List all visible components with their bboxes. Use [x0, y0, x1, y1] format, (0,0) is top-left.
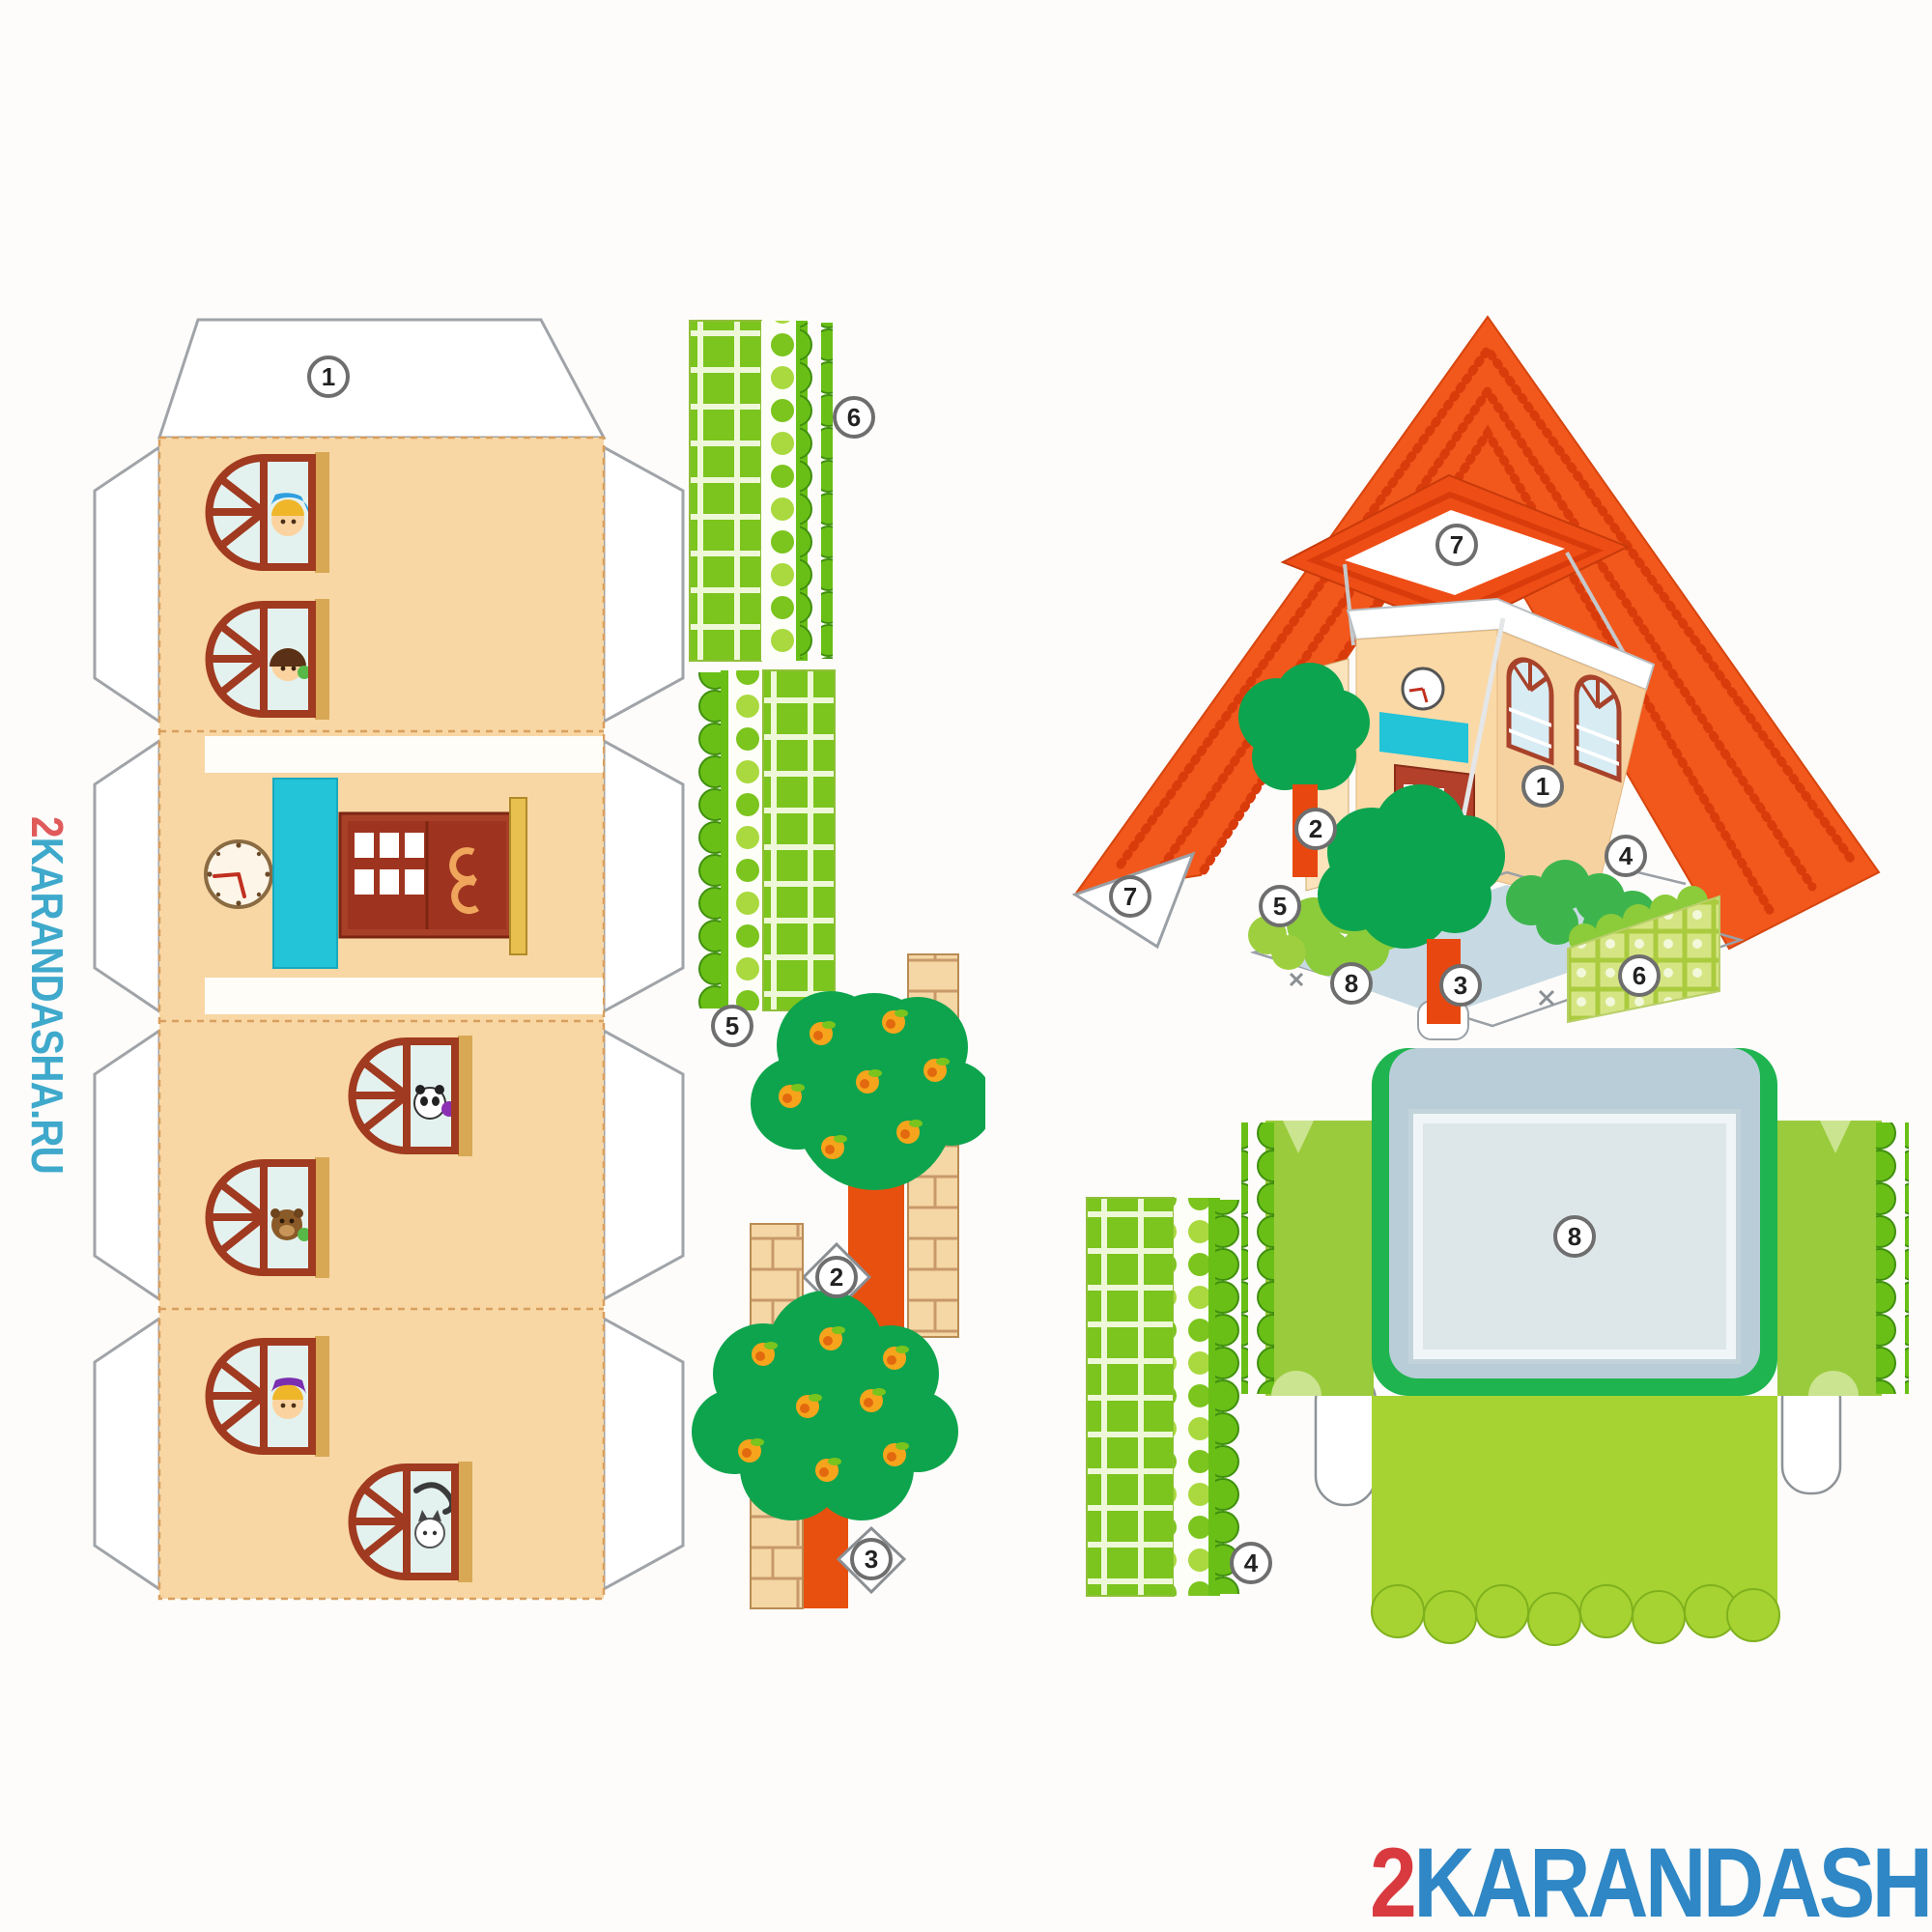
callout-2: 2 [815, 1256, 858, 1298]
clock-icon [206, 841, 271, 907]
callout-8: 8 [1553, 1215, 1596, 1258]
callout-5: 5 [711, 1005, 753, 1047]
window-icon [353, 1036, 473, 1156]
grass-wing-left [1241, 1121, 1374, 1396]
callout-asm-7: 7 [1109, 875, 1151, 918]
watermark-domain: KARANDASHA.RU [22, 838, 72, 1174]
callout-asm-4: 4 [1605, 835, 1647, 877]
house-wall-template [77, 309, 705, 1662]
hedge-strips [667, 309, 995, 1024]
window-icon [210, 599, 330, 720]
callout-4: 4 [1230, 1542, 1272, 1584]
assembly-diagram [1043, 290, 1893, 1082]
wall-band [205, 978, 603, 1014]
hedge-strip-4 [1087, 1198, 1245, 1596]
callout-asm-2: 2 [1294, 808, 1337, 850]
callout-asm-1: 1 [1521, 765, 1564, 808]
callout-asm-6: 6 [1618, 954, 1661, 997]
window-icon [210, 452, 330, 573]
callout-3: 3 [850, 1538, 893, 1580]
callout-asm-8: 8 [1330, 962, 1373, 1005]
watermark-side: 2KARANDASHA.RU [25, 816, 70, 1174]
hedge-strip-6 [690, 321, 833, 661]
watermark-prefix: 2 [1370, 1828, 1413, 1932]
callout-1: 1 [307, 355, 350, 398]
callout-6: 6 [833, 396, 875, 439]
callout-asm-5: 5 [1259, 885, 1301, 927]
grass-wing-right [1777, 1121, 1909, 1396]
window-icon [210, 1336, 330, 1457]
watermark-prefix: 2 [22, 816, 72, 838]
door-pillar [510, 798, 526, 954]
door-icon [340, 813, 514, 937]
watermark-domain: KARANDASHA.RU [1413, 1828, 1932, 1932]
window-icon [353, 1462, 473, 1582]
callout-asm-3: 3 [1439, 964, 1482, 1007]
grass-flap-bottom [1372, 1396, 1779, 1645]
cyan-sign [273, 779, 337, 968]
window-icon [210, 1157, 330, 1278]
craft-sheet: 1 6 5 2 3 4 8 7 7 1 2 5 4 8 3 6 2KARANDA… [0, 0, 1932, 1932]
base-mat-template [1053, 1024, 1932, 1700]
wall-band [205, 736, 603, 773]
watermark-bottom: 2KARANDASHA.RU [1370, 1833, 1932, 1932]
callout-asm-7b: 7 [1435, 524, 1478, 566]
